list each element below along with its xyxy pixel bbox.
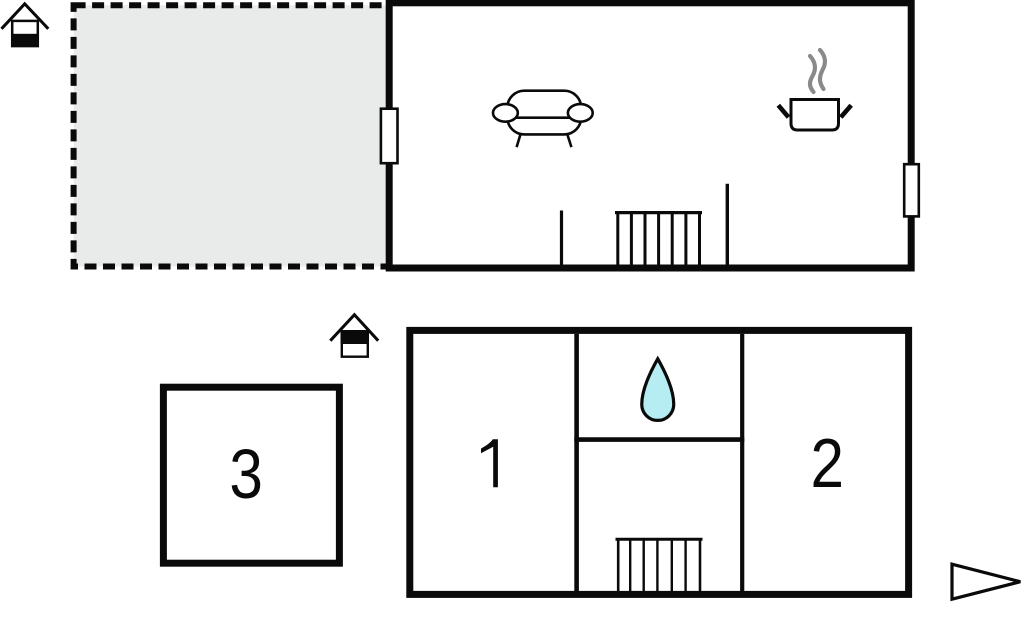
svg-text:2: 2 — [810, 424, 843, 502]
svg-text:3: 3 — [229, 435, 262, 513]
